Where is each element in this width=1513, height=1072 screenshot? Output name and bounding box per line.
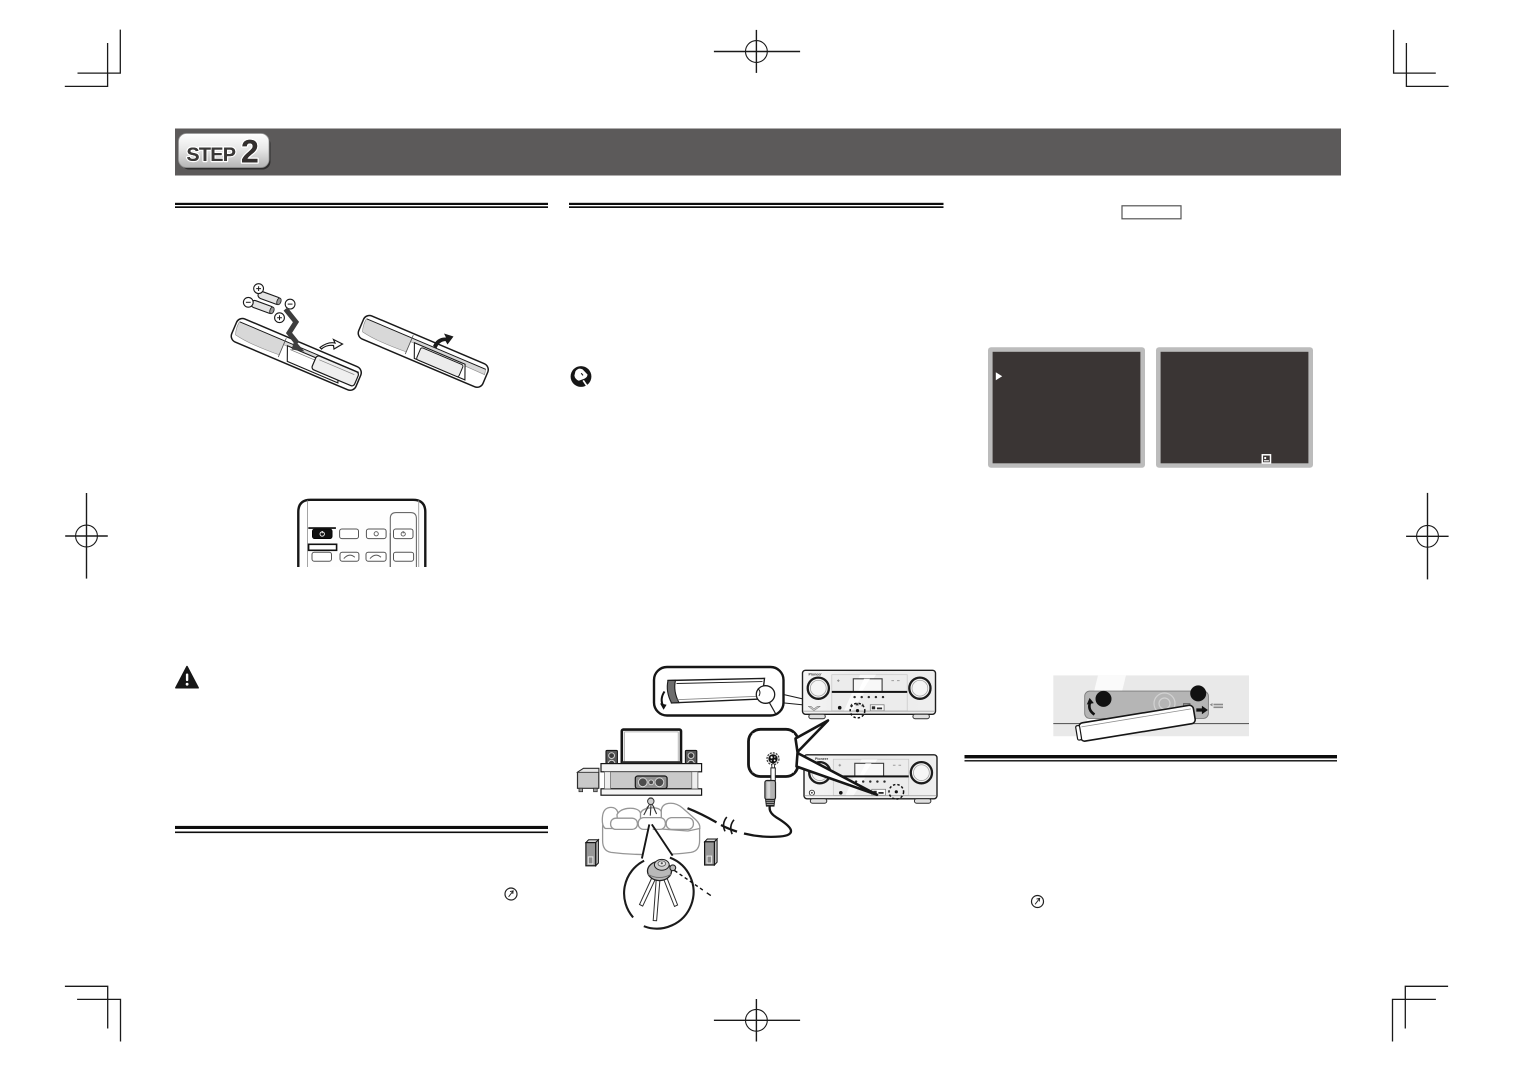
svg-text:2: 2: [241, 134, 259, 170]
svg-text:Pioneer: Pioneer: [815, 757, 829, 761]
svg-text:STEP: STEP: [187, 144, 236, 166]
svg-text:Pioneer: Pioneer: [809, 672, 823, 676]
